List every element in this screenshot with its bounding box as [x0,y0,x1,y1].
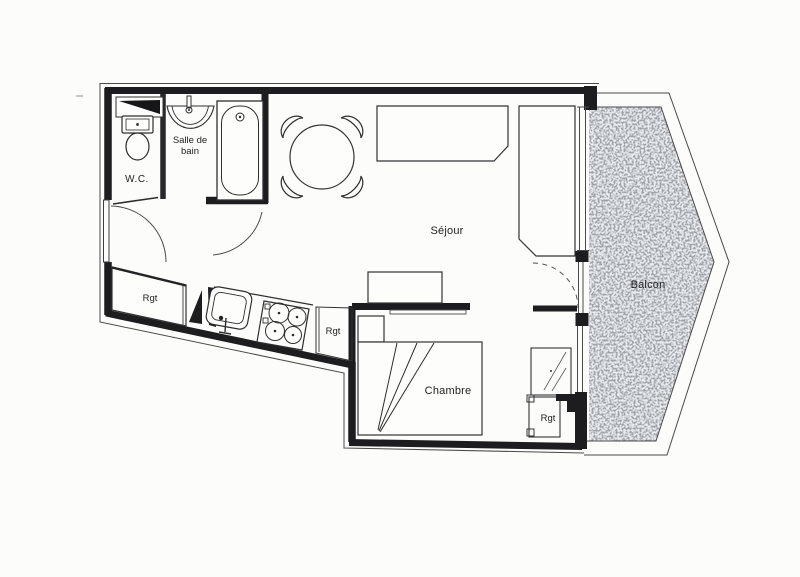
wall-bedroom-bottom [349,443,582,447]
balcony-label: Balcon [631,279,666,291]
entry-door-leaf [104,200,110,262]
burner-dot [292,334,295,337]
living-unit-top [377,106,508,161]
toilet-bowl [126,133,149,160]
chair [276,176,303,203]
duct-shaft-kitchen [189,290,202,324]
washbasin [167,106,214,128]
floor-plan: W.C. Salle de bain Rgt [0,0,800,577]
closet-post [527,395,534,402]
dining-table [290,125,354,189]
kitchen-sink-outer [205,286,253,331]
right-wall-glazing [576,107,590,392]
kitchen-closet-label: Rgt [326,326,341,337]
burner-dot [274,330,277,333]
bedroom-closet-label: Rgt [541,413,556,424]
balcony [584,93,729,455]
wc-room: W.C. [113,97,163,204]
wall-corner-ne [584,86,597,110]
shelf [390,310,466,314]
closet-door-mark [544,352,566,390]
bathroom-door-swing-arc [213,212,262,255]
wc-label: W.C. [125,174,149,185]
closet-knob [550,370,552,372]
desk [368,272,442,303]
closet-door-mark [552,368,566,391]
balcony-floor [589,107,714,441]
entry [104,200,167,262]
scan-artifact [76,95,83,97]
bedroom: Chambre Rgt [358,310,578,437]
washbasin-drain-dot [188,109,190,111]
burner-dot [278,312,281,315]
washbasin-tap [187,96,191,108]
closet-post [527,429,534,436]
entry-closet-label: Rgt [143,293,158,304]
bedroom-label: Chambre [425,385,472,397]
chair [341,111,368,138]
wc-door-leaf [113,198,158,205]
kitchen-faucet-dot [219,316,223,320]
chair [276,111,303,138]
toilet-button [136,123,139,126]
bathtub-drain-dot [239,116,241,118]
chair [341,176,368,203]
bedroom-door-swing-arc [533,263,578,308]
kitchen-sink [205,286,253,331]
living-unit-right [519,106,575,256]
wall-closet-corner [556,394,578,412]
bathroom: Salle de bain [167,96,263,255]
bedside-table [358,316,384,342]
balcony-door-post [576,251,589,262]
entry-door-swing-arc [111,206,166,262]
balcony-door-post [576,313,589,326]
kitchen: Rgt Rgt [112,267,352,361]
living-room: Séjour [276,106,578,309]
bathroom-label-line2: bain [181,146,199,157]
bathroom-label-line1: Salle de [173,135,207,146]
living-label: Séjour [431,225,464,237]
burner-dot [296,316,299,319]
